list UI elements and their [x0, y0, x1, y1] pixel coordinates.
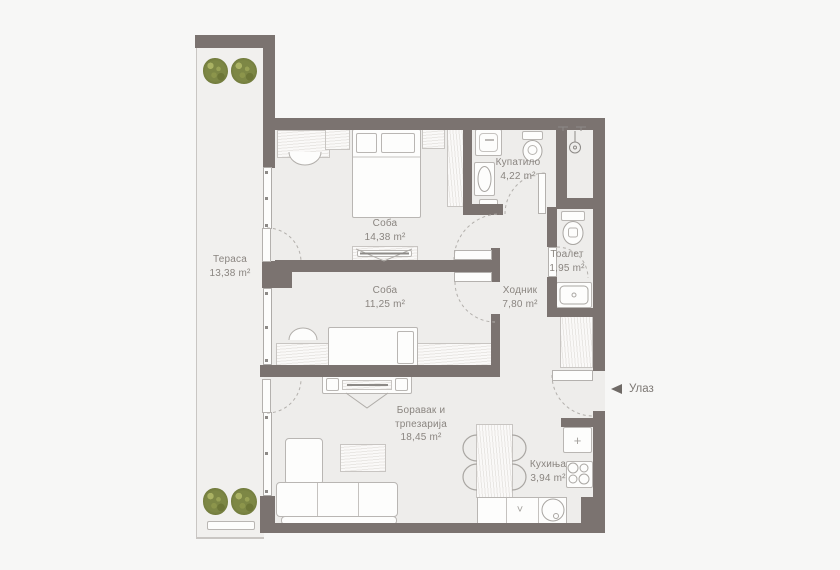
stove [566, 461, 593, 488]
sofa [276, 482, 398, 517]
sofa-cushion-divider [317, 483, 318, 516]
wall [556, 198, 605, 209]
room-area: 14,38 m² [345, 231, 425, 245]
entrance-door [552, 370, 593, 381]
bedroom-door [454, 250, 492, 260]
tv [357, 250, 412, 257]
room-name: Ходник [494, 284, 546, 298]
wall [593, 118, 605, 371]
terrace-floor [196, 47, 264, 539]
room-name: Купатило [486, 156, 550, 170]
wall [260, 365, 492, 377]
nightstand [422, 129, 445, 149]
entry-closet [560, 313, 593, 368]
coffee-table [340, 444, 386, 472]
room-name: Тоалет [541, 248, 593, 262]
desk [277, 130, 330, 158]
counter-divider [538, 498, 539, 523]
room-name: Тераса [196, 253, 264, 267]
washbasin [556, 282, 592, 308]
dining-table [476, 424, 513, 498]
terrace-bench [207, 521, 255, 530]
bedroom-door [454, 272, 492, 282]
entrance-label: Улаз [629, 383, 654, 395]
entrance-arrow-icon [611, 384, 622, 394]
speaker [326, 378, 339, 391]
room-label-bathroom: Купатило 4,22 m² [486, 156, 550, 183]
wall [463, 130, 472, 207]
room-name: Боравак и [383, 404, 459, 418]
room-area: 3,94 m² [526, 472, 570, 486]
speaker [395, 378, 408, 391]
toilet-tank [561, 211, 585, 221]
window [263, 412, 272, 496]
room-area: 13,38 m² [196, 267, 264, 281]
room-area: 11,25 m² [345, 298, 425, 312]
room-label-living: Боравак и трпезарија 18,45 m² [383, 404, 459, 445]
floor-plan: ˅ + [0, 0, 840, 570]
plant-icon [231, 58, 257, 84]
wall [463, 204, 503, 215]
room-label-bedroom1: Соба 14,38 m² [345, 217, 425, 244]
wall [547, 277, 557, 309]
room-label-toilet: Тоалет 1,95 m² [541, 248, 593, 275]
room-area: 1,95 m² [541, 262, 593, 276]
wall [561, 418, 593, 427]
nightstand [325, 129, 350, 150]
washing-machine [475, 129, 502, 156]
room-label-bedroom2: Соба 11,25 m² [345, 284, 425, 311]
wall [263, 118, 605, 130]
room-name: Кухиња [526, 458, 570, 472]
room-name: Соба [345, 284, 425, 298]
room-label-terrace: Тераса 13,38 m² [196, 253, 264, 280]
wall [275, 260, 497, 272]
sofa-cushion-divider [358, 483, 359, 516]
wall [491, 314, 500, 377]
wall [547, 207, 557, 247]
room-label-hallway: Ходник 7,80 m² [494, 284, 546, 311]
wall [581, 497, 605, 533]
room-name: трпезарија [383, 418, 459, 432]
pillow [381, 133, 415, 153]
room-area: 18,45 m² [383, 431, 459, 445]
cabinet-symbol: ˅ [505, 505, 535, 516]
sofa-chaise [285, 438, 323, 485]
toilet-tank [522, 131, 543, 140]
wall [262, 523, 605, 533]
room-name: Соба [345, 217, 425, 231]
plant-icon [203, 488, 228, 515]
washing-machine-door [479, 133, 498, 152]
window [263, 167, 272, 229]
pillow [356, 133, 377, 153]
plant-icon [231, 488, 257, 515]
wall [263, 47, 275, 168]
wall [556, 130, 567, 199]
entrance-marker: Улаз [611, 383, 654, 395]
washing-machine-dash [485, 139, 494, 141]
pillow [397, 331, 414, 364]
room-label-kitchen: Кухиња 3,94 m² [526, 458, 570, 485]
wall [491, 248, 500, 282]
room-area: 7,80 m² [494, 298, 546, 312]
fridge-symbol: + [563, 435, 592, 446]
tv [342, 380, 392, 390]
wall [547, 308, 593, 317]
room-area: 4,22 m² [486, 170, 550, 184]
plant-icon [203, 58, 228, 84]
window [263, 288, 272, 365]
terrace-door [262, 379, 271, 413]
